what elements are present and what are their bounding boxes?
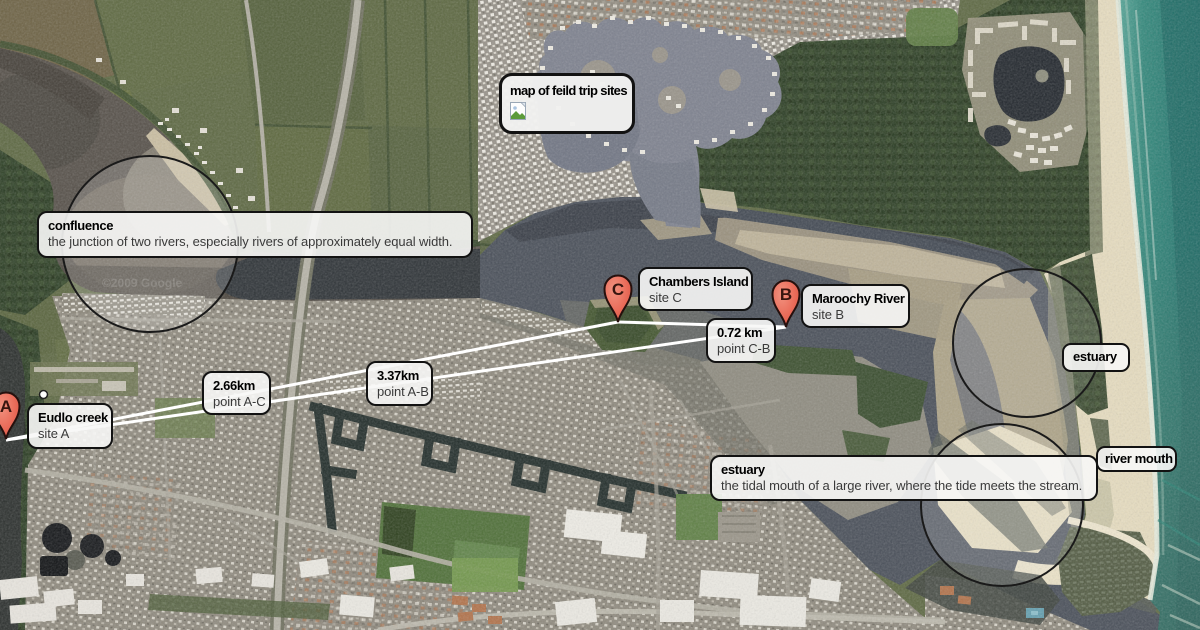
svg-text:B: B [780, 285, 792, 304]
svg-text:C: C [612, 280, 624, 299]
svg-text:A: A [0, 397, 12, 416]
